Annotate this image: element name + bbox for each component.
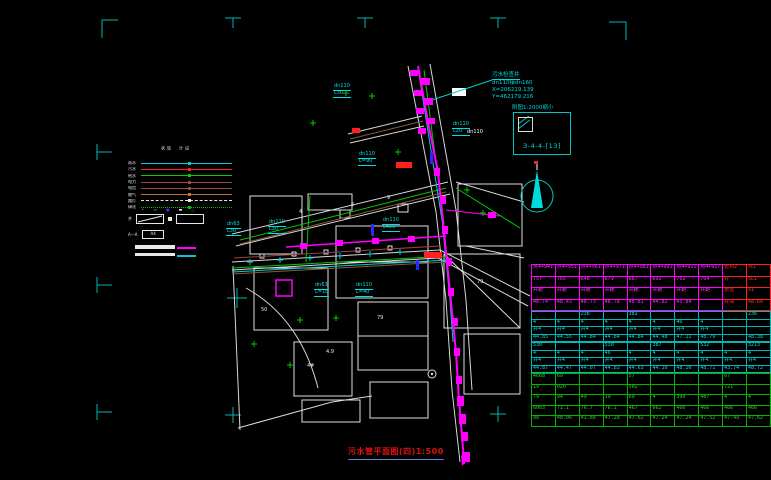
legend-row-label: 污水 — [128, 167, 141, 171]
table-cell: 44.07 — [579, 365, 603, 373]
table-cell: 4 — [723, 350, 747, 358]
legend-symbol-icon: △ — [191, 208, 194, 212]
map-annotation: 6 — [350, 203, 355, 209]
legend-line-sample — [141, 163, 232, 164]
table-cell: 井距 — [651, 288, 675, 300]
map-canvas[interactable]: 现状 设计 雨水污水给水电力电信燃气路灯绿化 +▬●▬△ 井 A—A A4 dn… — [0, 0, 771, 480]
drawing-title: 污水管平面图(四)1:500 — [348, 446, 444, 460]
table-cell: 点4+981 — [627, 265, 651, 277]
table-cell — [651, 384, 675, 395]
coord-y: Y=462179.216 — [492, 94, 534, 101]
tree-symbols — [251, 90, 486, 368]
hatch-square-icon — [518, 117, 533, 132]
legend-symbol-icon: + — [141, 208, 144, 212]
table-cell: 51 — [747, 288, 771, 300]
legend-row-label: 雨水 — [128, 161, 141, 165]
table-cell: 点4+917 — [699, 265, 723, 277]
table-cell: 466 — [723, 405, 747, 416]
legend-line-sample — [141, 182, 232, 183]
table-cell: 4 — [651, 350, 675, 358]
table-cell: 管材2 — [723, 265, 747, 277]
table-cell: 47.11 — [675, 334, 699, 342]
pipe-label: dn63L=16 — [314, 283, 329, 297]
table-cell — [699, 312, 723, 320]
table-cell: 502 — [627, 384, 651, 395]
legend-line-sample — [141, 169, 232, 170]
table-cell: 41.88 — [579, 416, 603, 427]
table-cell: 44.10 — [651, 365, 675, 373]
table-cell: 48.06 — [555, 416, 579, 427]
legend-row-label: 绿化 — [128, 205, 141, 209]
legend-row-label: 电力 — [128, 180, 141, 184]
table-cell: 382 — [627, 312, 651, 320]
table-cell: 4 — [699, 319, 723, 327]
legend-well-label: 井 — [128, 216, 132, 222]
table-cell: 井4 — [723, 358, 747, 366]
table-cell: 井4 — [555, 358, 579, 366]
legend-row-label: 给水 — [128, 174, 141, 178]
table-cell: 4 — [627, 350, 651, 358]
table-cell — [699, 374, 723, 385]
survey-point — [431, 373, 433, 375]
table-cell: 76.1 — [603, 405, 627, 416]
table-cell: 466 — [747, 405, 771, 416]
table-cell: 44.55 — [555, 334, 579, 342]
sheet-number: 3-4-4-[13] — [514, 142, 570, 150]
table-cell: 井距 — [675, 288, 699, 300]
table-cell — [579, 384, 603, 395]
table-cell: 46 — [603, 350, 627, 358]
table-cell: 692 — [651, 276, 675, 288]
table-cell: 47.24 — [675, 416, 699, 427]
table-cell — [723, 319, 747, 327]
table-cell — [747, 319, 771, 327]
table-cell: 757 — [532, 276, 556, 288]
table-cell: 井4 — [651, 358, 675, 366]
table-cell: 47.28 — [603, 416, 627, 427]
table-cell — [532, 312, 556, 320]
table-section-2: 530530387532321344446444444井4井4井4井4井4井4井… — [531, 342, 771, 373]
table-cell: 765 — [555, 276, 579, 288]
table-cell: 点4+961 — [579, 265, 603, 277]
legend-col-existing: 现状 — [160, 146, 172, 150]
table-cell: 98 — [532, 416, 556, 427]
pipe-connection: dn110接dn160 — [492, 80, 534, 87]
table-cell: 井距 — [579, 288, 603, 300]
legend-line-sample — [141, 175, 232, 176]
table-cell: 57 — [627, 374, 651, 385]
table-cell: 762 — [675, 276, 699, 288]
map-annotation: 79 — [376, 316, 384, 322]
table-cell: 44.84 — [603, 334, 627, 342]
table-cell: 71.1 — [555, 405, 579, 416]
map-annotation: 4 — [298, 210, 303, 216]
legend-line-marker — [188, 174, 191, 177]
table-cell — [723, 312, 747, 320]
table-cell: 6063 — [532, 405, 556, 416]
table-cell: 48.71 — [699, 365, 723, 373]
table-cell: 49 — [579, 395, 603, 406]
map-annotation: dn110 — [466, 130, 484, 136]
table-cell: 管径 — [723, 288, 747, 300]
table-cell: 井4 — [555, 327, 579, 335]
map-annotation: 4.9 — [325, 350, 335, 356]
table-cell — [723, 334, 747, 342]
table-cell: 648 — [579, 276, 603, 288]
legend-line-marker — [188, 199, 191, 202]
legend-line-sample — [141, 194, 232, 195]
table-cell: 020 — [555, 384, 579, 395]
table-cell — [747, 384, 771, 395]
table-cell — [675, 384, 699, 395]
table-cell: 点4+991 — [651, 265, 675, 277]
utility-lines — [232, 68, 520, 342]
legend-row-label: 电信 — [128, 186, 141, 190]
table-cell: 47.62 — [747, 416, 771, 427]
table-cell: 4 — [555, 319, 579, 327]
table-cell — [603, 312, 627, 320]
legend-rows: 雨水污水给水电力电信燃气路灯绿化 — [128, 160, 232, 210]
elevation-table: 点4+941点4+951点4+961点4+971点4+981点4+991点4+9… — [531, 264, 771, 427]
table-cell: 236 — [747, 312, 771, 320]
table-cell: 点4+911 — [675, 265, 699, 277]
table-cell: 19 — [603, 395, 627, 406]
existing-pipe-sample — [177, 255, 196, 257]
table-cell: 67 — [723, 374, 747, 385]
table-cell — [579, 343, 603, 351]
table-cell — [675, 312, 699, 320]
table-cell — [555, 343, 579, 351]
table-cell: 4 — [651, 395, 675, 406]
coord-x: X=206219.139 — [492, 87, 534, 94]
table-cell — [675, 374, 699, 385]
table-cell: 点4+951 — [555, 265, 579, 277]
table-section-0: 点4+941点4+951点4+961点4+971点4+981点4+991点4+9… — [531, 264, 771, 311]
table-cell: 44.83 — [603, 365, 627, 373]
table-cell: 点1 — [747, 265, 771, 277]
legend-line-marker — [188, 162, 191, 165]
table-cell: 44.47 — [555, 365, 579, 373]
table-cell — [675, 343, 699, 351]
table-cell: 井4 — [699, 327, 723, 335]
table-cell: 48.60 — [747, 299, 771, 311]
map-annotation: 50 — [260, 308, 268, 314]
table-cell: 井4 — [627, 327, 651, 335]
table-cell: 4 — [579, 319, 603, 327]
section-box: A4 — [142, 230, 163, 239]
table-cell: 48.79 — [699, 334, 723, 342]
table-cell: 井4 — [532, 358, 556, 366]
table-section-1: 236382236444444464井4井4井4井4井4井4井4井444.854… — [531, 311, 771, 342]
legend-row-label: 路灯 — [128, 199, 141, 203]
pipe-label: dn110L=90 — [358, 152, 376, 166]
table-cell: 48.43 — [555, 299, 579, 311]
table-cell: 47.49 — [723, 416, 747, 427]
table-cell: 47.52 — [699, 416, 723, 427]
table-cell: 46 — [675, 319, 699, 327]
table-cell: 387 — [651, 343, 675, 351]
legend-symbol-icon: ▬ — [153, 208, 157, 212]
legend-symbol-icon: ● — [166, 208, 170, 212]
table-cell: 井4 — [603, 327, 627, 335]
manhole-symbol-icon — [136, 214, 164, 224]
table-cell: 530 — [532, 343, 556, 351]
table-cell: 236 — [579, 312, 603, 320]
pipe-label: dn110L=40 — [355, 283, 373, 297]
table-cell: 3213 — [747, 343, 771, 351]
table-cell: 井距 — [603, 288, 627, 300]
table-cell: 48.73 — [579, 299, 603, 311]
table-cell: 467 — [627, 405, 651, 416]
table-cell: 764 — [699, 276, 723, 288]
pipe-label: dn110L30 — [333, 84, 351, 98]
table-cell: 79 — [532, 395, 556, 406]
table-cell: 48.38 — [747, 334, 771, 342]
legend-line-marker — [188, 181, 191, 184]
table-cell: 4 — [747, 350, 771, 358]
table-cell: 4 — [532, 350, 556, 358]
table-cell: 井距 — [555, 288, 579, 300]
table-cell — [747, 327, 771, 335]
map-annotation: 9 — [386, 196, 391, 202]
table-cell: 44.82 — [651, 299, 675, 311]
well-square-icon — [168, 217, 172, 221]
table-cell: 44.48 — [651, 334, 675, 342]
table-cell: 47.62 — [627, 416, 651, 427]
section-label: A—A — [128, 232, 137, 237]
north-arrow-icon — [521, 161, 553, 212]
table-cell — [723, 343, 747, 351]
table-cell: 48.10 — [675, 365, 699, 373]
table-cell: 5L1 — [747, 276, 771, 288]
table-cell: 487 — [699, 395, 723, 406]
map-annotation: 4# — [306, 364, 315, 370]
table-cell: 井4 — [579, 327, 603, 335]
sheet-index-box: 3-4-4-[13] — [513, 112, 571, 155]
table-cell: 4 — [555, 350, 579, 358]
table-cell: 井距 — [627, 288, 651, 300]
table-cell: 466 — [675, 405, 699, 416]
table-cell: 44.63 — [627, 365, 651, 373]
table-cell: 43.84 — [675, 299, 699, 311]
table-cell: 井4 — [675, 327, 699, 335]
table-cell: 530 — [603, 343, 627, 351]
legend-symbol-icon: ▬ — [179, 208, 183, 212]
table-cell: 44.84 — [579, 334, 603, 342]
table-cell: 井4 — [699, 358, 723, 366]
table-cell: 532 — [699, 343, 723, 351]
table-cell: 48.74 — [532, 299, 556, 311]
pipe-label: dn110L420 — [382, 218, 400, 232]
table-cell — [723, 327, 747, 335]
table-cell: 44.85 — [532, 334, 556, 342]
index-note: 附图1:2000缩小 — [512, 103, 553, 111]
table-cell: 井深 — [723, 299, 747, 311]
legend-col-design: 设计 — [178, 146, 190, 150]
table-cell: 井4 — [579, 358, 603, 366]
table-cell: 4 — [747, 395, 771, 406]
table-cell: 4 — [699, 350, 723, 358]
table-cell: 井4 — [747, 358, 771, 366]
table-cell — [627, 343, 651, 351]
roads — [232, 64, 530, 462]
table-cell: 井距 — [699, 288, 723, 300]
table-cell: 点4+941 — [532, 265, 556, 277]
table-cell: 44.84 — [627, 334, 651, 342]
map-annotation: 79 — [476, 280, 484, 286]
table-cell: 4 — [603, 319, 627, 327]
table-cell: 井4 — [603, 358, 627, 366]
legend-line-marker — [188, 193, 191, 196]
table-cell: 687 — [627, 276, 651, 288]
table-cell: 69 — [555, 374, 579, 385]
table-cell — [579, 374, 603, 385]
table-cell: 721 — [723, 384, 747, 395]
table-cell — [651, 374, 675, 385]
table-cell: 4 — [627, 319, 651, 327]
table-cell: 4 — [579, 350, 603, 358]
table-cell: 76.7 — [579, 405, 603, 416]
legend-line-sample — [141, 188, 232, 189]
legend-well-row: 井 — [128, 214, 204, 224]
table-cell — [603, 374, 627, 385]
table-cell: 井4 — [651, 327, 675, 335]
table-cell — [699, 384, 723, 395]
table-section-3: 4668695767190205027217994491969439048744… — [531, 373, 771, 427]
table-cell: 466 — [699, 405, 723, 416]
scale-bar — [135, 245, 175, 249]
legend-row-label: 燃气 — [128, 193, 141, 197]
table-cell: 390 — [675, 395, 699, 406]
manhole-coordinate-block: 污水检查井 dn110接dn160 X=206219.139 Y=462179.… — [492, 72, 534, 101]
legend-section-row: A—A A4 — [128, 230, 164, 239]
table-cell: 662 — [651, 405, 675, 416]
table-cell: 94 — [555, 395, 579, 406]
table-cell: 44.87 — [532, 365, 556, 373]
table-cell: 679 — [603, 276, 627, 288]
table-cell — [747, 374, 771, 385]
manhole-name: 污水检查井 — [492, 72, 520, 80]
table-cell: 井4 — [675, 358, 699, 366]
table-cell: 43.74 — [723, 365, 747, 373]
table-cell: 井距 — [532, 288, 556, 300]
table-cell: 4 — [651, 319, 675, 327]
design-pipe-sample — [177, 247, 196, 249]
table-cell: 48.72 — [747, 365, 771, 373]
table-cell: 井 — [723, 276, 747, 288]
table-cell: 69 — [627, 395, 651, 406]
legend-line-marker — [188, 187, 191, 190]
table-cell — [603, 384, 627, 395]
legend-symbols: +▬●▬△ — [141, 208, 195, 212]
table-cell: 4 — [723, 395, 747, 406]
table-cell: 点4+971 — [603, 265, 627, 277]
table-cell: 19 — [532, 384, 556, 395]
scale-bar — [135, 253, 175, 256]
table-cell: 井4 — [532, 327, 556, 335]
table-cell: 4668 — [532, 374, 556, 385]
chamber-symbol-icon — [176, 214, 204, 224]
table-cell — [651, 312, 675, 320]
table-cell: 4 — [675, 350, 699, 358]
pipe-label: dn110L30 — [268, 220, 286, 234]
table-cell: 4 — [532, 319, 556, 327]
legend-line-sample — [141, 200, 232, 201]
table-cell — [555, 312, 579, 320]
table-cell: 47.24 — [651, 416, 675, 427]
table-cell: 井4 — [627, 358, 651, 366]
legend-line-marker — [188, 168, 191, 171]
table-cell: 48.81 — [627, 299, 651, 311]
table-cell: 48.78 — [603, 299, 627, 311]
table-cell — [699, 299, 723, 311]
pipe-label: dn63L30 — [226, 222, 241, 236]
